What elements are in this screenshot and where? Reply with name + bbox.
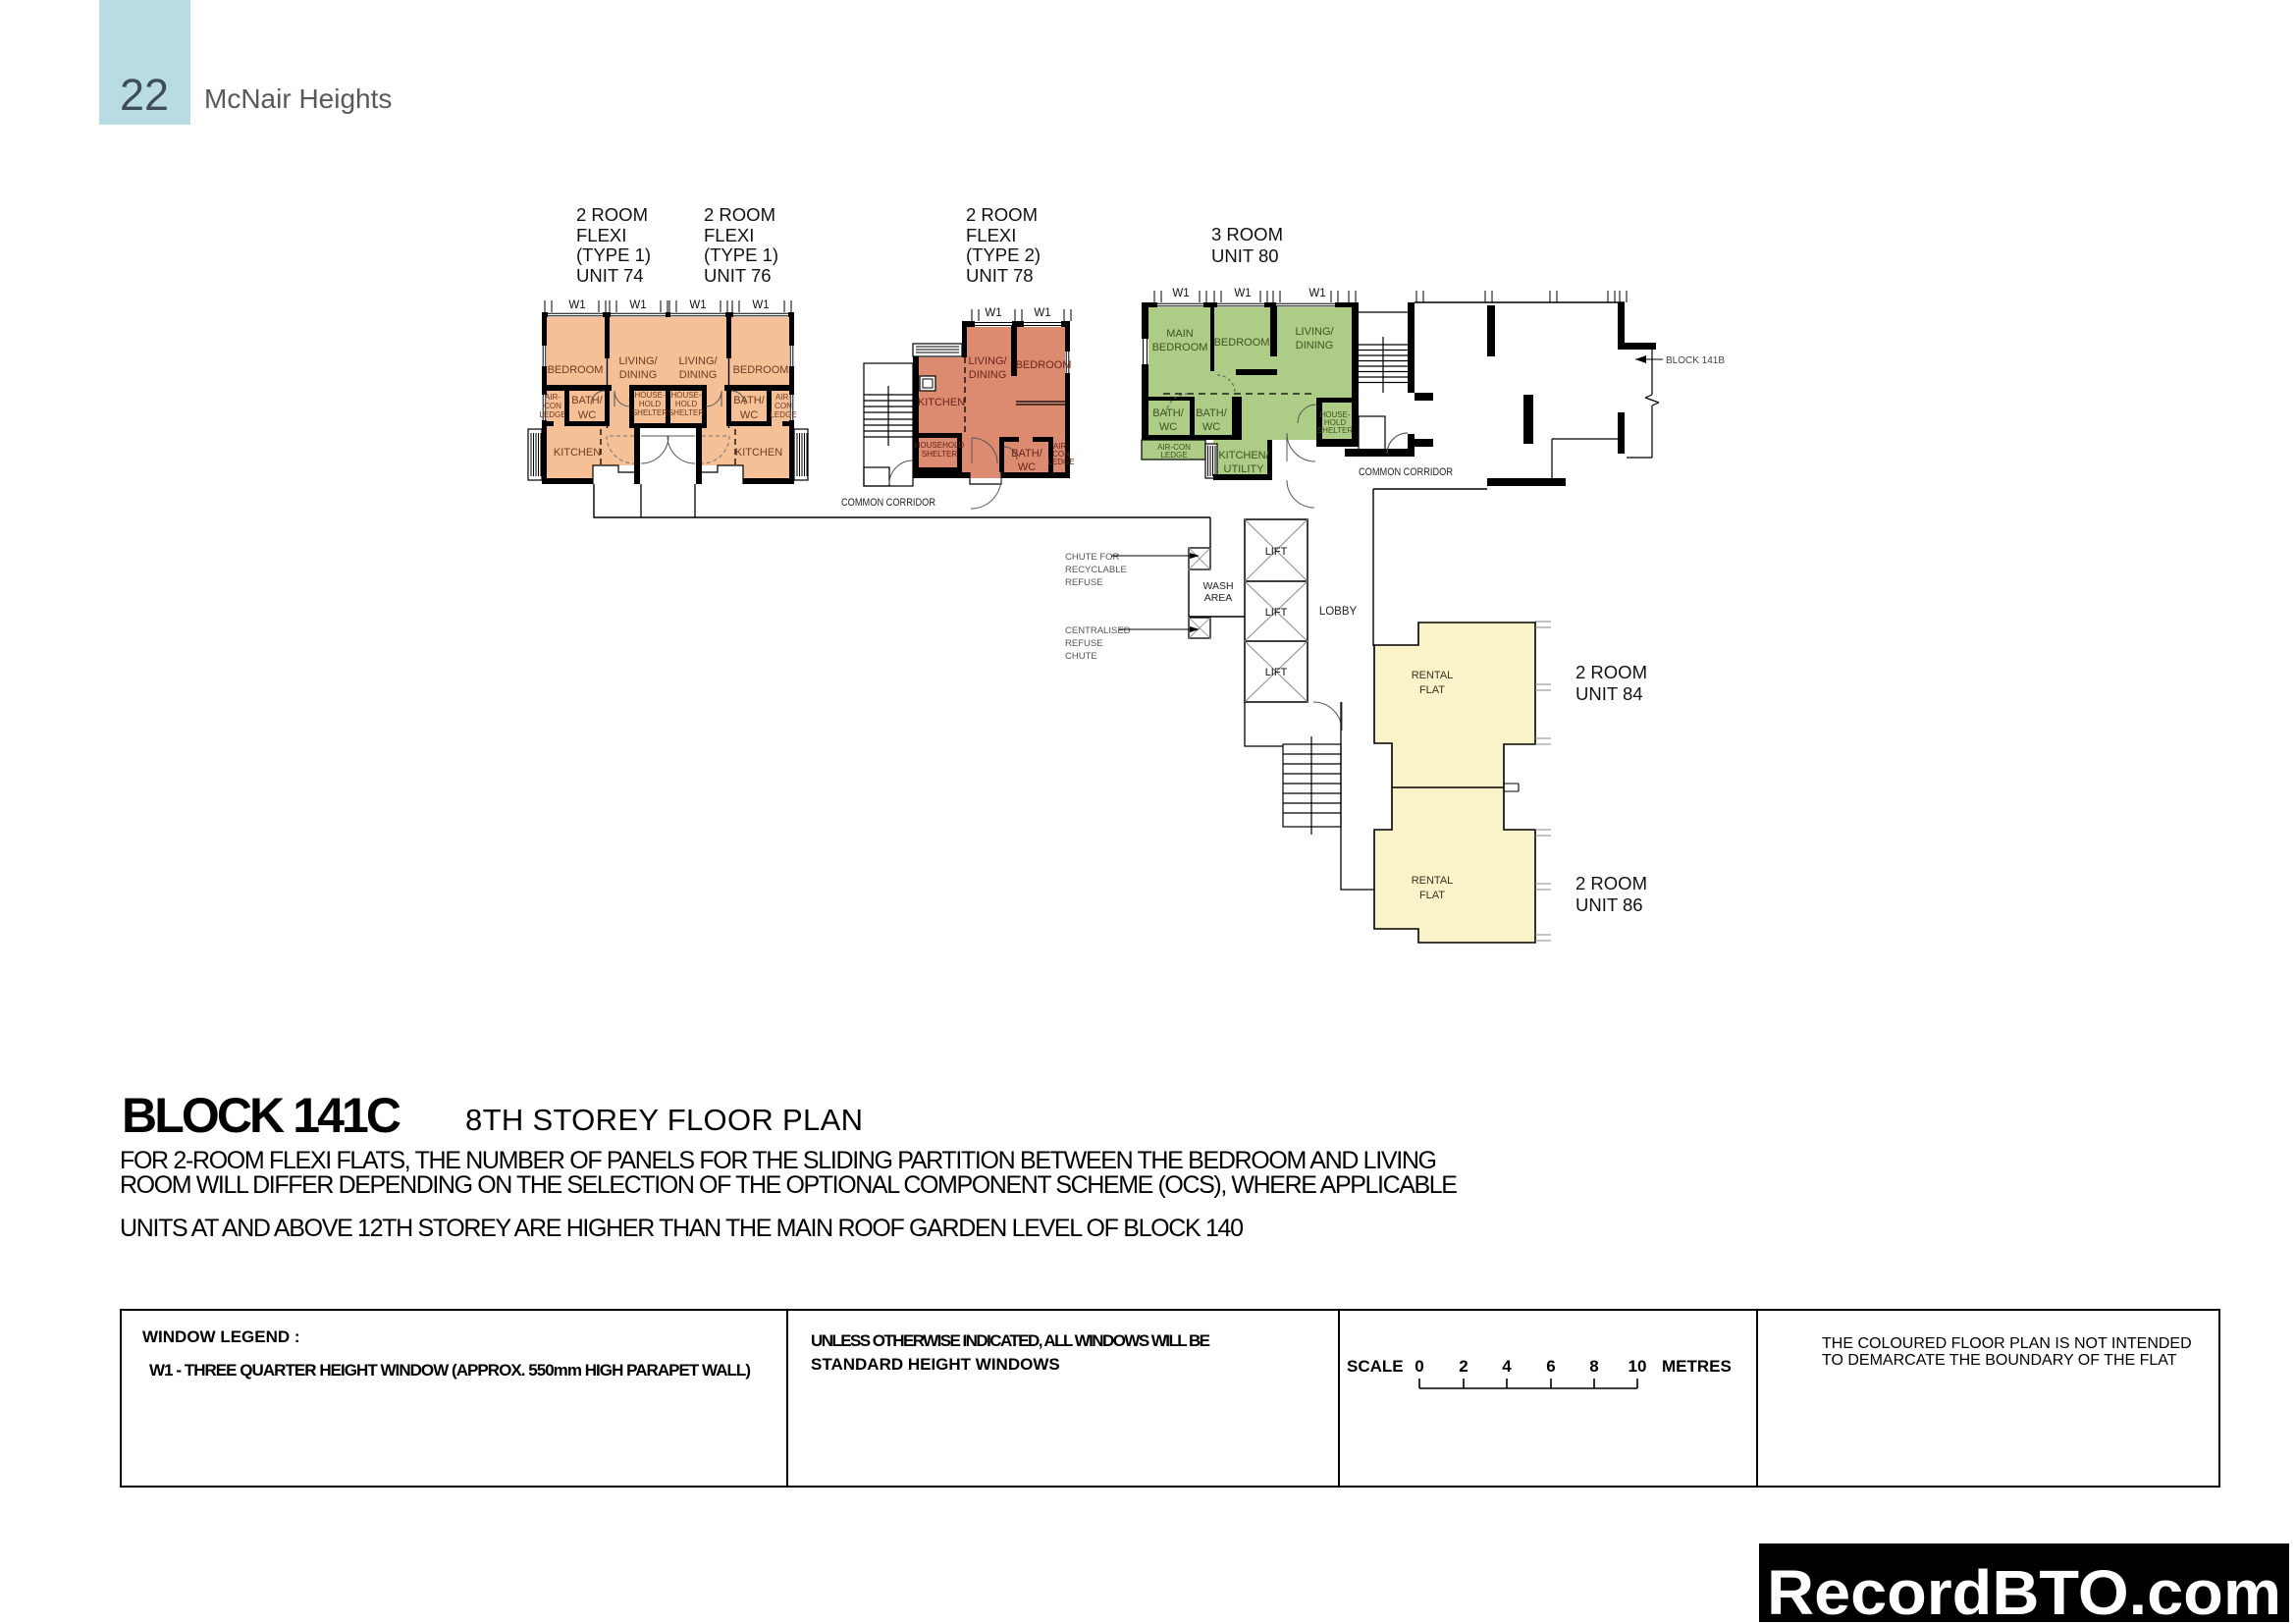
svg-text:KITCHEN: KITCHEN [918,397,965,408]
svg-text:THE COLOURED FLOOR PLAN IS NOT: THE COLOURED FLOOR PLAN IS NOT INTENDED [1822,1335,2192,1352]
svg-text:UNLESS OTHERWISE INDICATED, AL: UNLESS OTHERWISE INDICATED, ALL WINDOWS … [811,1331,1210,1350]
svg-text:KITCHEN/: KITCHEN/ [1218,450,1269,461]
svg-text:KITCHEN: KITCHEN [554,447,601,459]
svg-text:COMMON CORRIDOR: COMMON CORRIDOR [1359,466,1453,478]
svg-text:22: 22 [120,70,169,120]
svg-text:KITCHEN: KITCHEN [735,447,782,459]
svg-text:STANDARD HEIGHT WINDOWS: STANDARD HEIGHT WINDOWS [811,1355,1060,1374]
svg-text:McNair Heights: McNair Heights [204,83,392,114]
svg-text:AREA: AREA [1204,592,1233,604]
svg-text:METRES: METRES [1662,1357,1732,1376]
svg-text:REFUSE: REFUSE [1065,638,1103,649]
svg-text:6: 6 [1546,1357,1555,1376]
svg-text:2 ROOM: 2 ROOM [576,204,648,225]
svg-text:DINING: DINING [619,369,658,381]
svg-text:CON: CON [774,402,792,410]
svg-text:BATH/: BATH/ [1011,448,1043,460]
svg-text:W1: W1 [1308,288,1325,299]
svg-text:UNIT 84: UNIT 84 [1575,683,1643,704]
svg-text:BLOCK 141C: BLOCK 141C [122,1088,401,1143]
svg-text:LIFT: LIFT [1265,607,1288,619]
svg-text:LIVING/: LIVING/ [968,355,1007,367]
svg-text:HOUSE-: HOUSE- [634,391,665,400]
svg-text:SHELTER: SHELTER [668,408,705,417]
svg-text:4: 4 [1502,1357,1512,1376]
svg-text:DINING: DINING [679,369,718,381]
svg-text:FLAT: FLAT [1419,684,1445,696]
svg-text:W1: W1 [1034,307,1050,319]
svg-text:WC: WC [1018,461,1036,473]
svg-text:ROOM WILL DIFFER DEPENDING ON: ROOM WILL DIFFER DEPENDING ON THE SELECT… [120,1171,1458,1199]
svg-text:W1: W1 [568,299,585,311]
svg-text:CHUTE: CHUTE [1065,651,1097,662]
svg-text:WC: WC [1159,421,1177,433]
svg-text:WINDOW LEGEND :: WINDOW LEGEND : [142,1327,300,1346]
svg-text:LEDGE: LEDGE [1047,458,1074,466]
svg-text:SHELTER: SHELTER [1317,426,1354,435]
svg-text:FLEXI: FLEXI [576,225,626,245]
svg-text:UNITS AT AND ABOVE 12TH STOREY: UNITS AT AND ABOVE 12TH STOREY ARE HIGHE… [120,1215,1244,1242]
svg-text:UNIT 86: UNIT 86 [1575,894,1643,915]
svg-text:HOLD: HOLD [675,400,697,408]
svg-text:W1: W1 [985,307,1001,319]
svg-text:8: 8 [1589,1357,1598,1376]
svg-text:UTILITY: UTILITY [1224,463,1265,475]
svg-text:2: 2 [1459,1357,1468,1376]
svg-text:WC: WC [1202,421,1220,433]
svg-text:TO DEMARCATE THE BOUNDARY OF T: TO DEMARCATE THE BOUNDARY OF THE FLAT [1822,1352,2177,1369]
svg-text:BATH/: BATH/ [1152,407,1185,419]
svg-text:LOBBY: LOBBY [1319,606,1358,618]
svg-text:HOUSEHOLD: HOUSEHOLD [915,441,965,450]
svg-text:BATH/: BATH/ [733,395,766,406]
svg-text:WC: WC [740,409,758,421]
svg-text:HOUSE-: HOUSE- [670,391,701,400]
svg-text:2 ROOM: 2 ROOM [966,204,1038,225]
svg-text:DINING: DINING [969,369,1007,381]
svg-text:2 ROOM: 2 ROOM [1575,873,1647,893]
svg-text:W1: W1 [1234,288,1251,299]
svg-text:2 ROOM: 2 ROOM [704,204,775,225]
svg-text:MAIN: MAIN [1166,328,1194,340]
svg-text:BEDROOM: BEDROOM [1152,342,1208,353]
svg-text:W1: W1 [752,299,769,311]
svg-text:LEDGE: LEDGE [1160,451,1187,460]
svg-text:FOR 2-ROOM FLEXI FLATS, THE NU: FOR 2-ROOM FLEXI FLATS, THE NUMBER OF PA… [120,1147,1437,1174]
svg-text:LIVING/: LIVING/ [678,355,718,367]
svg-text:8TH STOREY FLOOR PLAN: 8TH STOREY FLOOR PLAN [465,1103,863,1137]
svg-text:BEDROOM: BEDROOM [1214,337,1270,349]
svg-text:CON: CON [544,402,561,410]
svg-text:W1: W1 [629,299,646,311]
svg-text:FLAT: FLAT [1419,890,1445,901]
svg-text:HOLD: HOLD [639,400,661,408]
svg-text:(TYPE 2): (TYPE 2) [966,244,1041,265]
svg-text:AIR-: AIR- [775,393,791,402]
svg-text:3 ROOM: 3 ROOM [1211,224,1283,244]
svg-text:LEDGE: LEDGE [539,410,565,419]
svg-text:(TYPE 1): (TYPE 1) [576,244,651,265]
svg-text:10: 10 [1629,1357,1647,1376]
svg-text:DINING: DINING [1296,340,1334,352]
svg-text:LIVING/: LIVING/ [1295,326,1334,338]
svg-text:BLOCK 141B: BLOCK 141B [1666,355,1725,366]
svg-text:LIVING/: LIVING/ [618,355,658,367]
svg-text:0: 0 [1415,1357,1423,1376]
svg-text:BEDROOM: BEDROOM [548,364,604,376]
svg-text:BATH/: BATH/ [571,395,604,406]
svg-text:W1: W1 [1172,288,1189,299]
svg-text:RENTAL: RENTAL [1412,670,1454,681]
svg-text:WASH: WASH [1202,580,1233,592]
svg-text:BATH/: BATH/ [1196,407,1228,419]
svg-text:CENTRALISED: CENTRALISED [1065,625,1131,636]
svg-text:RECYCLABLE: RECYCLABLE [1065,565,1127,575]
svg-text:UNIT 78: UNIT 78 [966,265,1034,286]
svg-text:AIR-: AIR- [545,393,561,402]
svg-text:FLEXI: FLEXI [966,225,1016,245]
svg-text:SHELTER: SHELTER [922,450,958,459]
svg-text:BEDROOM: BEDROOM [733,364,789,376]
svg-text:BEDROOM: BEDROOM [1016,359,1072,371]
svg-text:CHUTE FOR: CHUTE FOR [1065,552,1120,563]
svg-text:COMMON CORRIDOR: COMMON CORRIDOR [841,497,935,509]
svg-text:UNIT 76: UNIT 76 [704,265,772,286]
svg-text:W1 - THREE QUARTER HEIGHT WIND: W1 - THREE QUARTER HEIGHT WINDOW (APPROX… [149,1361,751,1380]
svg-text:W1: W1 [689,299,706,311]
svg-text:RENTAL: RENTAL [1412,875,1454,887]
svg-text:(TYPE 1): (TYPE 1) [704,244,778,265]
svg-text:LEDGE: LEDGE [770,410,796,419]
svg-text:SHELTER: SHELTER [632,408,668,417]
svg-text:SCALE: SCALE [1347,1357,1404,1376]
svg-text:WC: WC [578,409,596,421]
svg-text:LIFT: LIFT [1265,546,1288,558]
svg-text:REFUSE: REFUSE [1065,577,1103,588]
svg-text:LIFT: LIFT [1265,667,1288,678]
svg-text:UNIT 74: UNIT 74 [576,265,644,286]
svg-text:FLEXI: FLEXI [704,225,754,245]
svg-text:UNIT 80: UNIT 80 [1211,245,1279,266]
svg-text:2 ROOM: 2 ROOM [1575,662,1647,682]
svg-text:RecordBTO.com: RecordBTO.com [1767,1557,2281,1624]
